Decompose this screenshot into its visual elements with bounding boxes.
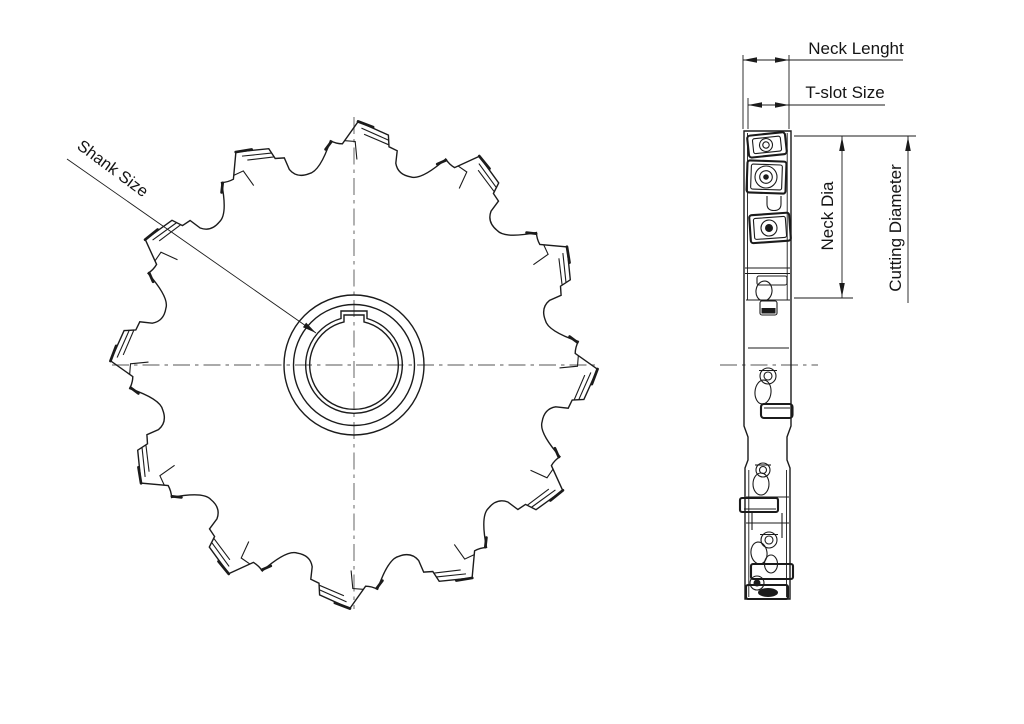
drawing-canvas: Shank Size [0,0,1024,724]
arrowhead [743,57,757,63]
insert-top-2 [746,160,786,193]
insert-face-line [142,448,145,477]
gullet-hook-heavy [172,496,182,497]
insert-seat-step [533,245,548,265]
arrowhead [905,137,911,151]
insert-seat-step [241,542,249,564]
insert-face-line [123,330,133,354]
insert-top-1 [747,132,787,158]
cutting-edge-heavy [335,603,350,609]
insert-seat-step [351,571,363,590]
gullet-hook-heavy [326,142,332,150]
cutting-edge-heavy [236,149,252,152]
insert-face-line [559,258,562,284]
insert-seat-step [458,166,466,188]
pocket-notch [767,196,781,211]
cutting-edge-heavy [358,121,373,127]
dimension-annotations: Neck Lenght T-slot Size Neck Dia Cutting… [303,39,916,335]
cutting-edge-heavy [138,467,141,483]
insert-face-line [364,134,388,144]
insert-edge-dark [758,588,778,597]
arrowhead [775,102,789,108]
insert-top-3 [749,213,791,244]
gullet-hook-heavy [527,233,537,234]
gullet-hook-heavy [131,388,139,394]
insert-edge-dark [762,308,776,314]
gullet-hook-heavy [262,566,271,570]
pocket-step [757,276,787,285]
chip-pocket [754,379,772,404]
technical-drawing: Shank Size [0,0,1024,724]
label-neck-dia: Neck Dia [818,181,837,251]
side-view-cutter-profile [720,131,818,599]
insert-face-line [574,375,584,399]
insert-face-line [434,570,460,573]
label-tslot-size: T-slot Size [805,83,884,102]
insert-seat-step [345,141,357,160]
gullet-hook-heavy [570,337,578,343]
arrowhead [775,57,789,63]
gullet-hook-heavy [437,160,446,164]
cutting-edge-heavy [456,578,472,581]
insert-seat-step [531,469,553,477]
gullet-hook-heavy [485,538,486,548]
front-view-disc-cutter: Shank Size [67,117,598,609]
insert-edge-view [761,404,793,418]
label-cutting-diameter: Cutting Diameter [886,164,905,292]
insert-face-line [319,585,343,595]
label-neck-length: Neck Lenght [808,39,904,58]
insert-seat-step [160,465,175,485]
insert-face-line [437,574,466,577]
insert-face-line [247,157,273,160]
insert-seat-step [130,362,149,374]
gullet-hook-heavy [222,183,223,193]
insert-seat-step [560,356,579,368]
screw-head [760,467,767,474]
arrowhead [748,102,762,108]
screw-head [765,536,773,544]
screw-head [764,372,772,380]
insert-seat-step [234,171,254,186]
insert-face-line [563,253,566,282]
insert-seat-step [454,544,474,559]
insert-face-line [242,153,271,156]
insert-face-line [146,445,149,471]
gullet-hook-heavy [149,273,153,282]
arrowhead [839,137,845,151]
cutting-edge-heavy [567,247,570,263]
cutting-edge-heavy [592,369,598,384]
insert-seat-step [155,252,177,260]
shank-leader-line [67,159,316,333]
gullet-hook-heavy [377,581,383,589]
chip-pocket [750,541,769,565]
cutting-edge-heavy [110,346,116,361]
arrowhead [839,283,845,297]
gullet-hook-heavy [555,448,559,457]
